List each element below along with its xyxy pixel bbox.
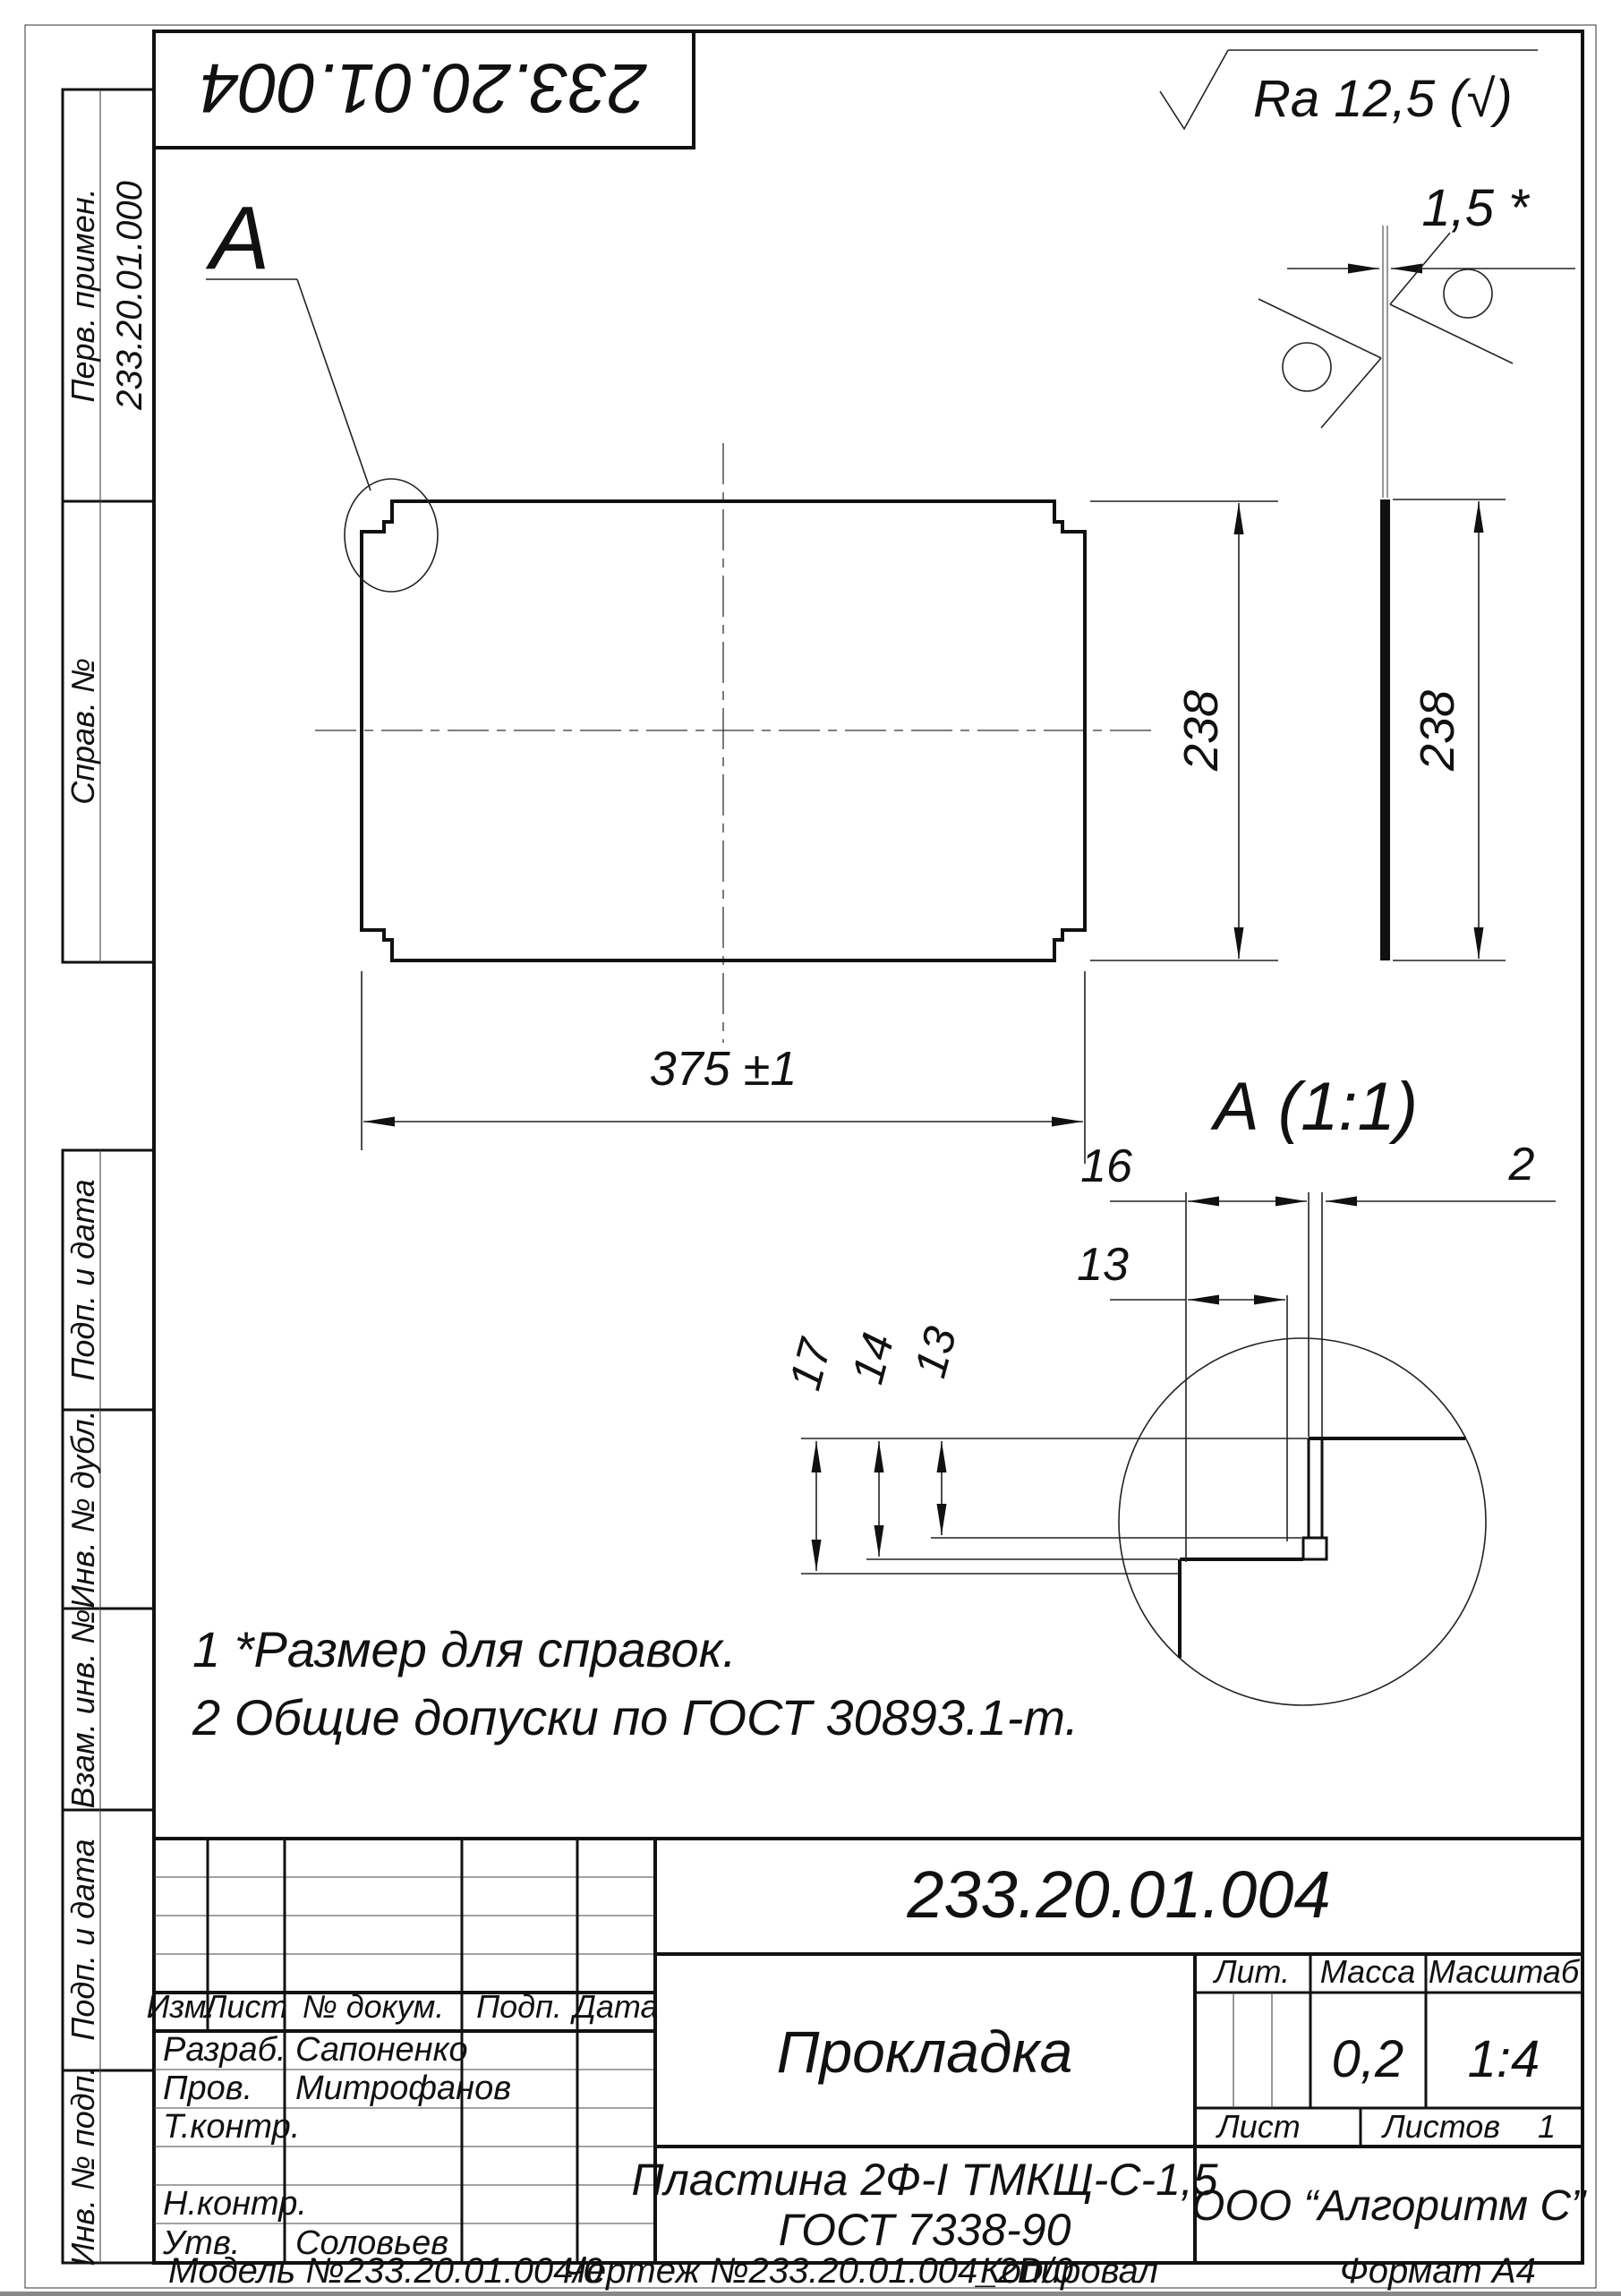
tb-masshtab-value: 1:4: [1468, 2030, 1540, 2088]
margin-label-inv-dubl: Инв. № дубл.: [64, 1410, 101, 1608]
detail-dim-13-top: 13: [1077, 1239, 1129, 1291]
margin-label-podp-data-1: Подп. и дата: [64, 1179, 101, 1380]
note-line-1: 1 *Размер для справок.: [192, 1621, 737, 1677]
left-margin-column: Перв. примен. 233.20.01.000 Справ. № Под…: [63, 90, 154, 2266]
margin-label-vzam-inv: Взам. инв. №: [64, 1609, 101, 1809]
margin-label-sprav: Справ. №: [64, 658, 101, 805]
roughness-note: Ra 12,5 (√): [1160, 50, 1538, 129]
detail-dim-17: 17: [780, 1332, 841, 1395]
margin-label-perv-primen: Перв. примен.: [64, 188, 101, 402]
note-line-2: 2 Общие допуски по ГОСТ 30893.1-т.: [192, 1689, 1079, 1745]
tb-listov-label: Листов: [1381, 2108, 1500, 2145]
main-view: А 375 ±1 238: [206, 188, 1278, 1164]
drawing-sheet: Перв. примен. 233.20.01.000 Справ. № Под…: [0, 0, 1621, 2292]
tb-razrab-label: Разраб.: [163, 2031, 286, 2069]
tb-lit-label: Лит.: [1213, 1953, 1290, 1990]
margin-value-perv-primen: 233.20.01.000: [110, 181, 149, 411]
dim-thickness-text: 1,5 *: [1421, 179, 1531, 237]
footer-copied: Копировал: [980, 2251, 1158, 2291]
tb-prov-label: Пров.: [163, 2070, 252, 2107]
side-plate-section: [1380, 499, 1390, 960]
tb-massa-label: Масса: [1320, 1953, 1415, 1990]
detail-callout-label: А: [206, 188, 270, 288]
roughness-text: Ra 12,5 (√): [1253, 70, 1513, 128]
margin-label-podp-data-2: Подп. и дата: [64, 1839, 101, 2040]
detail-dim-13-left: 13: [905, 1321, 967, 1382]
face-roughness-symbol-right: [1390, 233, 1513, 363]
rotated-designation-box: 233.20.01.004: [154, 31, 694, 148]
tb-masshtab-label: Масштаб: [1429, 1953, 1581, 1990]
detail-title: А (1:1): [1210, 1069, 1418, 1145]
tb-designation: 233.20.01.004: [906, 1857, 1330, 1932]
dim-side-height-text: 238: [1411, 690, 1464, 772]
tb-part-name: Прокладка: [777, 2019, 1073, 2085]
footer-format: Формат А4: [1340, 2251, 1536, 2291]
detail-dim-16: 16: [1080, 1140, 1132, 1192]
tb-razrab-value: Сапоненко: [295, 2031, 468, 2069]
tb-listov-value: 1: [1538, 2108, 1556, 2145]
sheet-outer-border: [25, 25, 1596, 2288]
tb-organization: ООО “Алгоритм С”: [1191, 2182, 1587, 2230]
tb-tkontr-label: Т.контр.: [163, 2108, 300, 2146]
face-roughness-symbol-left: [1258, 299, 1381, 428]
footer-strip: Модель №233.20.01.004/0 Чертеж №233.20.0…: [168, 2251, 1536, 2291]
tb-nkontr-label: Н.контр.: [163, 2185, 307, 2223]
tb-material-1: Пластина 2Ф-I ТМКЩ-С-1,5: [631, 2155, 1217, 2205]
detail-dim-2: 2: [1508, 1139, 1535, 1191]
tb-prov-value: Митрофанов: [295, 2070, 511, 2107]
gost-drawing-svg: Перв. примен. 233.20.01.000 Справ. № Под…: [0, 0, 1621, 2292]
dim-width-text: 375 ±1: [650, 1042, 798, 1096]
title-block: Изм. Лист № докум. Подп. Дата Разраб. Са…: [147, 1839, 1587, 2263]
tb-col-data: Дата: [570, 1988, 659, 2025]
detail-callout-circle: [345, 479, 438, 592]
margin-label-inv-podp: Инв. № подп.: [64, 2067, 101, 2266]
tb-material-2: ГОСТ 7338-90: [779, 2205, 1071, 2255]
notes: 1 *Размер для справок. 2 Общие допуски п…: [192, 1621, 1079, 1745]
detail-notch: [1303, 1538, 1327, 1559]
tb-col-list: Лист: [203, 1988, 288, 2025]
tb-list-label: Лист: [1216, 2108, 1301, 2145]
footer-model: Модель №233.20.01.004/0: [168, 2251, 603, 2291]
roughness-check-icon: [1160, 50, 1228, 129]
tb-col-doc: № докум.: [303, 1988, 445, 2025]
detail-dim-14: 14: [842, 1327, 903, 1388]
side-view: 1,5 * 238: [1258, 179, 1575, 960]
tb-col-podp: Подп.: [476, 1988, 562, 2025]
rotated-designation-text: 233.20.01.004: [200, 49, 648, 128]
dim-height-text: 238: [1174, 690, 1228, 772]
tb-massa-value: 0,2: [1332, 2030, 1404, 2088]
detail-boundary-circle: [1119, 1338, 1486, 1705]
detail-view-a: А (1:1) 16 2 13 17 14 13: [780, 1069, 1556, 1705]
sheet-frame: [154, 31, 1583, 2263]
